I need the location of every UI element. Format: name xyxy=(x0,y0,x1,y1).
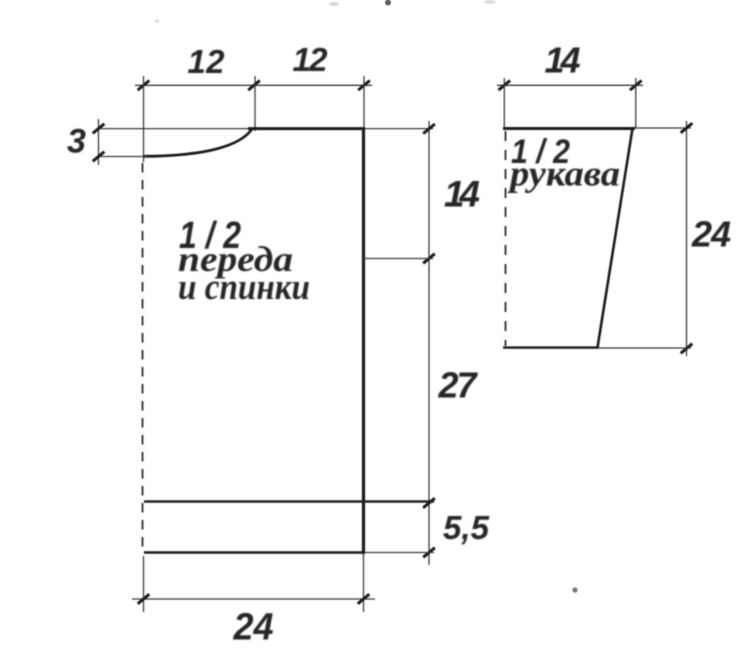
svg-text:3: 3 xyxy=(67,123,86,161)
svg-text:5,5: 5,5 xyxy=(443,509,490,546)
svg-text:14: 14 xyxy=(545,40,581,81)
svg-text:27: 27 xyxy=(438,365,479,406)
svg-text:12: 12 xyxy=(293,41,329,78)
svg-text:12: 12 xyxy=(188,43,226,80)
svg-text:14: 14 xyxy=(444,174,480,215)
svg-text:24: 24 xyxy=(691,214,731,255)
svg-text:рукава: рукава xyxy=(507,154,620,194)
svg-text:24: 24 xyxy=(233,607,274,649)
svg-text:и спинки: и спинки xyxy=(178,267,310,308)
